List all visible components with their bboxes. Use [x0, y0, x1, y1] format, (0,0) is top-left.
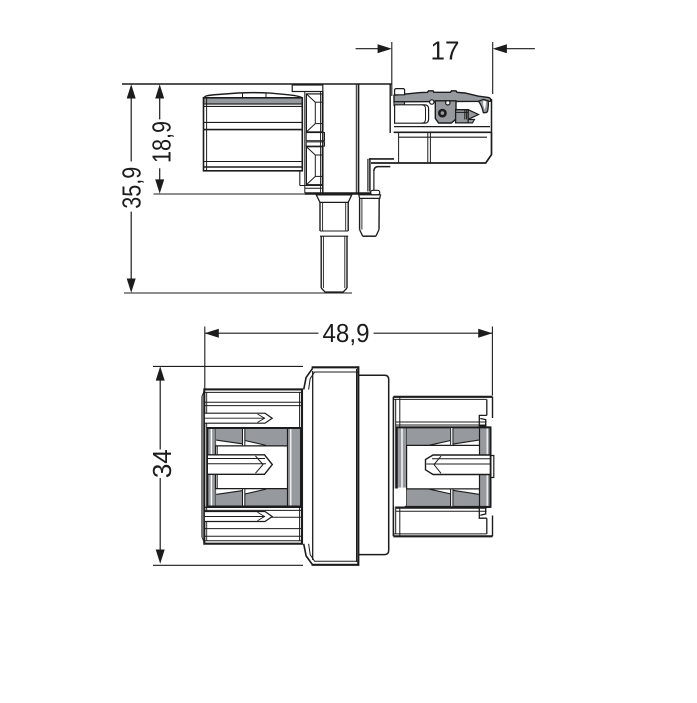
- svg-text:35,9: 35,9: [116, 167, 146, 209]
- svg-text:18,9: 18,9: [146, 121, 176, 163]
- svg-text:34: 34: [147, 449, 177, 478]
- svg-text:48,9: 48,9: [323, 318, 370, 348]
- svg-text:17: 17: [431, 36, 460, 66]
